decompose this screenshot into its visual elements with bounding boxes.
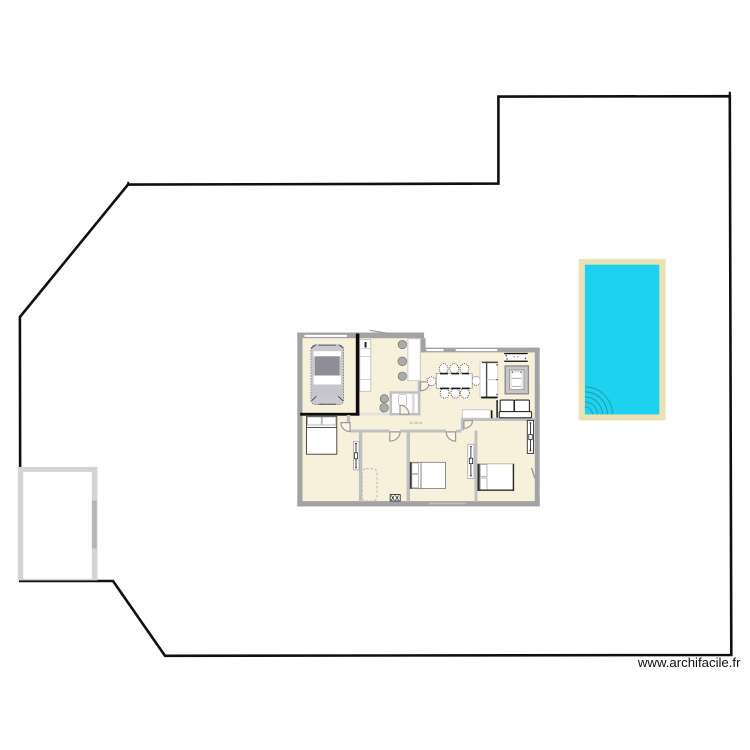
svg-text:10.06 m²: 10.06 m² — [409, 421, 423, 425]
